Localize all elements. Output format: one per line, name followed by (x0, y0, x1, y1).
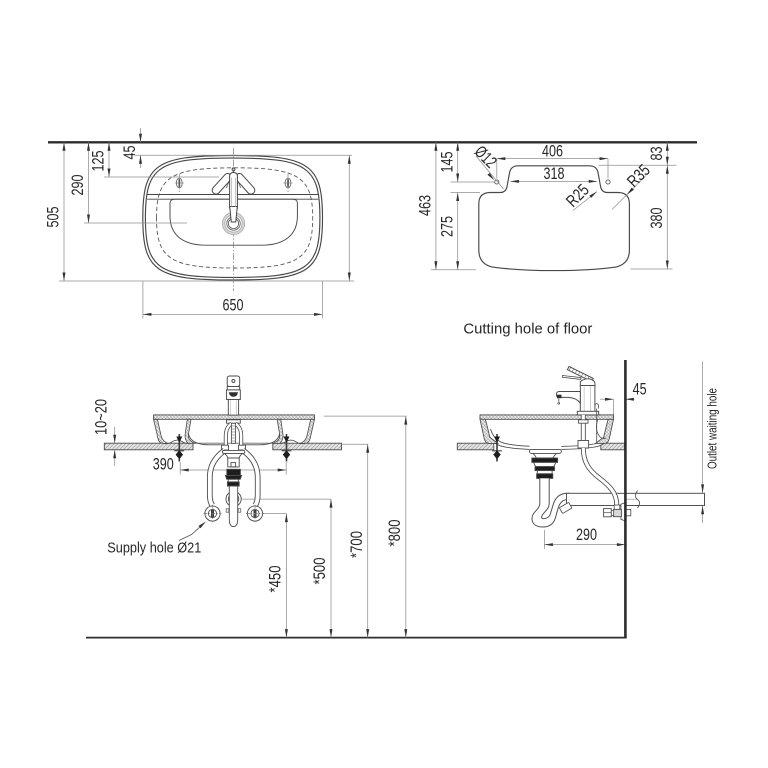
svg-text:83: 83 (647, 147, 666, 161)
svg-text:318: 318 (544, 164, 565, 183)
svg-text:650: 650 (223, 296, 244, 315)
svg-text:*800: *800 (385, 520, 404, 547)
svg-text:406: 406 (542, 141, 563, 160)
svg-text:Cutting hole of floor: Cutting hole of floor (463, 321, 592, 337)
svg-text:275: 275 (437, 216, 456, 237)
svg-text:Outlet waiting hole: Outlet waiting hole (706, 388, 720, 469)
svg-text:*450: *450 (266, 566, 285, 593)
svg-text:45: 45 (120, 146, 139, 160)
svg-text:45: 45 (633, 379, 647, 398)
svg-text:463: 463 (415, 195, 434, 216)
svg-text:380: 380 (647, 208, 666, 229)
svg-text:10~20: 10~20 (92, 399, 111, 435)
svg-text:290: 290 (68, 175, 87, 196)
svg-text:125: 125 (89, 151, 108, 172)
svg-text:390: 390 (153, 454, 174, 473)
svg-text:*500: *500 (310, 558, 329, 585)
svg-text:*700: *700 (347, 531, 366, 558)
svg-text:290: 290 (576, 525, 597, 544)
svg-text:505: 505 (44, 207, 63, 228)
svg-text:145: 145 (437, 152, 456, 173)
svg-text:Supply hole Ø21: Supply hole Ø21 (107, 541, 201, 557)
